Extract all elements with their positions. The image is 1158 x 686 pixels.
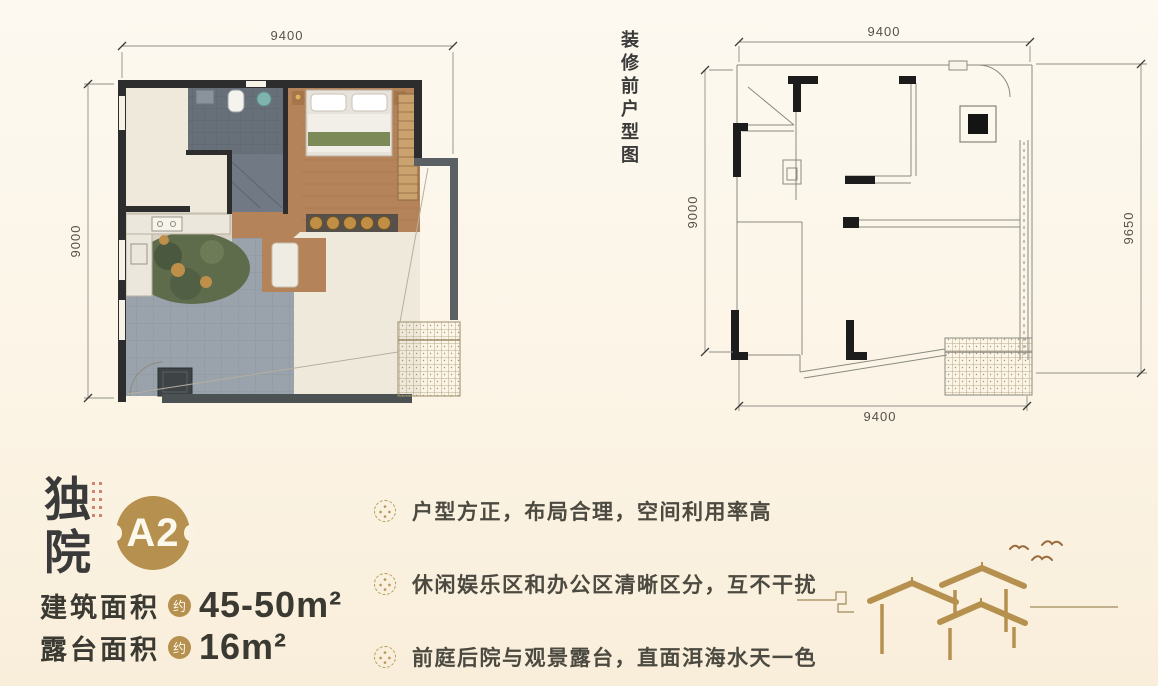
feature-item: 前庭后院与观景露台，直面洱海水天一色 — [374, 642, 794, 672]
left-plan-dim-top: 9400 — [271, 28, 304, 43]
bench-cushions — [306, 214, 398, 232]
shaft-column — [968, 114, 988, 134]
building-area-row: 建筑面积 约 45-50m² — [40, 584, 342, 626]
unit-type-char-2: 院 — [44, 527, 91, 580]
feature-text: 休闲娱乐区和办公区清晰区分，互不干扰 — [412, 569, 817, 599]
right-plan-dim-right: 9650 — [1121, 212, 1136, 245]
approx-icon: 约 — [168, 636, 191, 659]
terrace-area-row: 露台面积 约 16m² — [40, 626, 287, 668]
right-plan-dim-top: 9400 — [868, 24, 901, 39]
unit-type-name: 独 院 — [44, 474, 91, 579]
right-floor-plan: 9400 9000 9650 9400 — [685, 24, 1147, 424]
left-floor-plan: 9400 9000 — [68, 28, 460, 403]
pre-decoration-caption: 装修前户型图 — [620, 30, 638, 168]
feature-item: 休闲娱乐区和办公区清晰区分，互不干扰 — [374, 569, 794, 599]
terrace-area-label: 露台面积 — [40, 628, 160, 667]
feature-text: 户型方正，布局合理，空间利用率高 — [412, 496, 772, 526]
roofline-illustration — [797, 541, 1118, 660]
unit-type-char-1: 独 — [44, 474, 91, 527]
badge-notch-right — [184, 525, 196, 541]
approx-icon: 约 — [168, 594, 191, 617]
seal-marks — [92, 482, 106, 518]
birds-icon — [1010, 541, 1062, 560]
feature-item: 户型方正，布局合理，空间利用率高 — [374, 496, 794, 526]
left-plan-dim-left: 9000 — [68, 225, 83, 258]
structural-columns — [731, 76, 916, 360]
bed — [292, 90, 406, 156]
building-area-value: 45-50m² — [199, 584, 342, 626]
unit-badge: A2 — [116, 496, 190, 570]
brochure-page: 9400 9000 — [0, 0, 1158, 686]
right-plan-dim-bottom: 9400 — [864, 409, 897, 424]
building-area-label: 建筑面积 — [40, 586, 160, 625]
dotted-circle-icon — [374, 573, 396, 595]
unit-badge-label: A2 — [126, 511, 179, 556]
feature-text: 前庭后院与观景露台，直面洱海水天一色 — [412, 642, 817, 672]
entry-door-arc-right — [978, 65, 1010, 97]
feature-list: 户型方正，布局合理，空间利用率高 休闲娱乐区和办公区清晰区分，互不干扰 前庭后院… — [374, 496, 794, 686]
dotted-circle-icon — [374, 500, 396, 522]
terrace-area-value: 16m² — [199, 626, 287, 668]
badge-notch-left — [110, 525, 122, 541]
dotted-circle-icon — [374, 646, 396, 668]
pergola-grid — [398, 322, 460, 396]
right-plan-dim-left: 9000 — [685, 196, 700, 229]
